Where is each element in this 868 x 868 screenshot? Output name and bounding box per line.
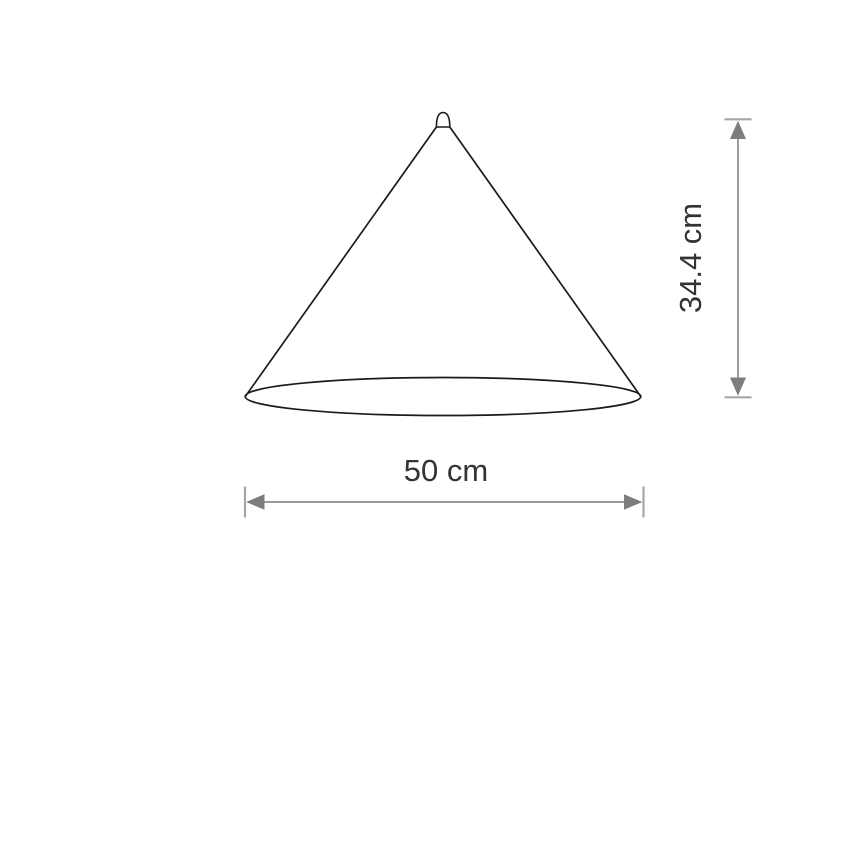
cone-base-ellipse [245, 378, 641, 416]
width-arrow-right-icon [624, 494, 642, 510]
height-dimension-label: 34.4 cm [673, 203, 708, 313]
height-dimension: 34.4 cm [673, 119, 752, 397]
diagram-canvas: 34.4 cm 50 cm [0, 0, 868, 868]
cone-right-edge [450, 127, 641, 397]
width-arrow-left-icon [246, 494, 264, 510]
height-arrow-up-icon [730, 121, 746, 139]
cone-dimension-diagram: 34.4 cm 50 cm [0, 0, 868, 868]
cone-shape [245, 113, 641, 416]
cone-left-edge [245, 127, 436, 397]
width-dimension-label: 50 cm [404, 453, 488, 488]
height-arrow-down-icon [730, 378, 746, 396]
cone-apex-cap [436, 113, 449, 128]
width-dimension: 50 cm [245, 453, 644, 518]
